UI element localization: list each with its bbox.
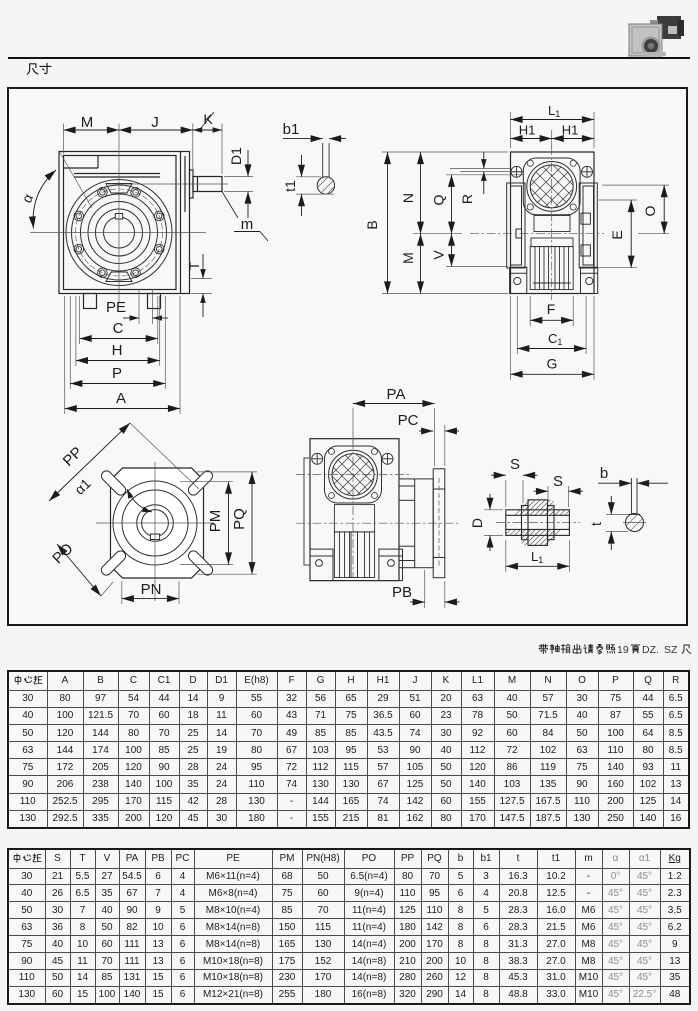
- svg-text:PC: PC: [398, 412, 419, 429]
- svg-text:P: P: [112, 365, 122, 382]
- svg-text:PE: PE: [106, 299, 126, 316]
- svg-text:H: H: [112, 342, 123, 359]
- svg-text:α: α: [18, 191, 36, 205]
- svg-text:PA: PA: [387, 386, 406, 403]
- svg-text:SZ: SZ: [664, 644, 678, 655]
- svg-text:R: R: [459, 194, 475, 204]
- svg-text:T: T: [186, 261, 202, 270]
- svg-text:PO: PO: [49, 540, 76, 567]
- svg-text:M: M: [81, 114, 94, 131]
- svg-text:PP: PP: [60, 444, 86, 470]
- svg-text:C1: C1: [548, 331, 562, 347]
- svg-text:b1: b1: [283, 121, 300, 138]
- svg-text:C: C: [113, 320, 124, 337]
- svg-text:F: F: [547, 301, 556, 317]
- svg-text:D1: D1: [228, 147, 244, 165]
- svg-text:t: t: [588, 522, 604, 526]
- svg-text:H1: H1: [562, 123, 579, 138]
- svg-text:O: O: [642, 205, 658, 216]
- svg-text:M: M: [400, 252, 416, 264]
- svg-text:PB: PB: [392, 584, 412, 601]
- svg-text:G: G: [547, 356, 558, 372]
- svg-text:t1: t1: [282, 180, 298, 192]
- svg-text:B: B: [364, 220, 380, 229]
- svg-text:H1: H1: [519, 123, 536, 138]
- svg-text:L1: L1: [531, 549, 543, 565]
- svg-text:S: S: [510, 456, 520, 473]
- svg-text:PN: PN: [141, 581, 162, 598]
- svg-text:N: N: [400, 193, 416, 203]
- svg-text:V: V: [431, 250, 447, 260]
- svg-text:A: A: [116, 390, 126, 407]
- svg-text:DZ.: DZ.: [642, 644, 659, 655]
- svg-text:J: J: [151, 114, 159, 131]
- svg-text:S: S: [553, 473, 563, 490]
- svg-text:PQ: PQ: [231, 508, 248, 530]
- svg-text:PM: PM: [207, 510, 224, 533]
- svg-text:b: b: [600, 465, 608, 482]
- svg-text:19: 19: [617, 644, 629, 655]
- svg-text:α1: α1: [71, 475, 94, 498]
- svg-text:m: m: [241, 216, 254, 233]
- svg-text:E: E: [609, 230, 625, 239]
- svg-text:Q: Q: [431, 194, 447, 205]
- svg-text:D: D: [469, 518, 485, 528]
- svg-text:L1: L1: [548, 103, 560, 119]
